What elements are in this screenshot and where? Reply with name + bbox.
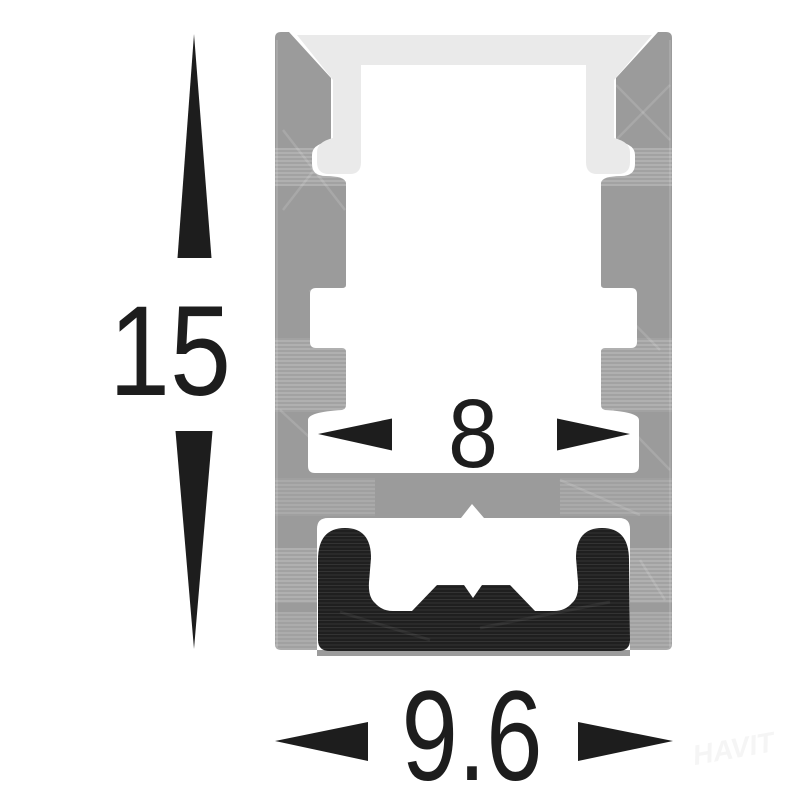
outer-width-dimension-label: 9.6 [402,665,543,800]
profile-cross-section-figure: 15 8 9.6 HAVIT [0,0,800,800]
profile-diagram-svg: 15 8 9.6 HAVIT [0,0,800,800]
height-dimension-label: 15 [109,280,231,423]
inner-width-dimension-label: 8 [448,379,498,488]
